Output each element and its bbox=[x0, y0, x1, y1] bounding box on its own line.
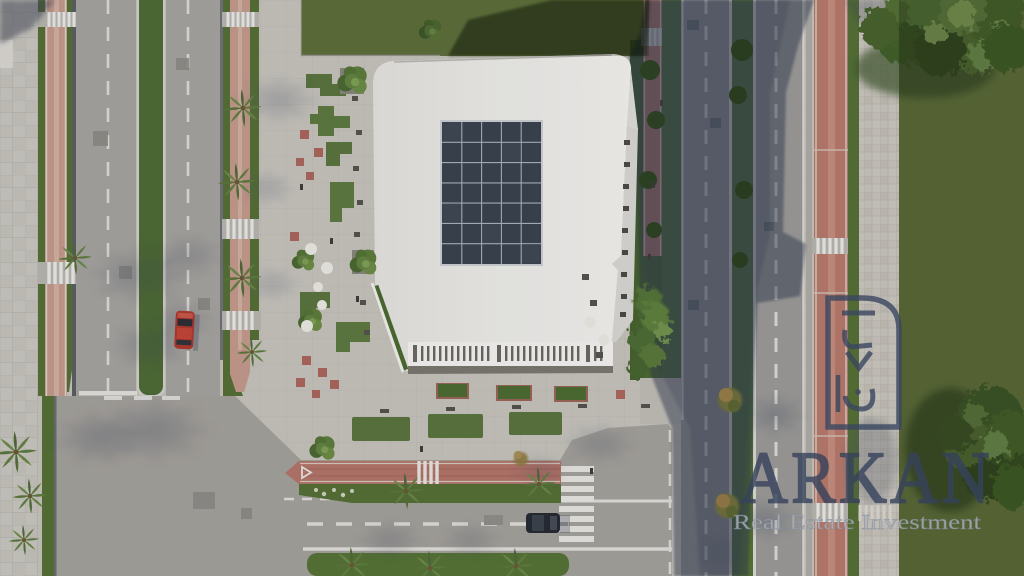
svg-text:Real Estate Investment: Real Estate Investment bbox=[733, 510, 981, 534]
svg-text:ARKAN: ARKAN bbox=[740, 437, 993, 518]
